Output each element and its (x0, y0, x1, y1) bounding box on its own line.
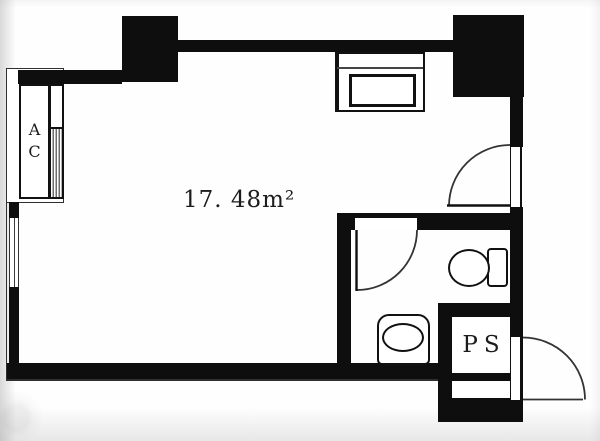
louver-panel-icon (49, 127, 64, 199)
room-door-slot (510, 147, 522, 207)
outer-line-left (6, 200, 8, 381)
toilet-tank-icon (487, 248, 508, 287)
area-label: 17. 48m² (183, 187, 295, 213)
basin-bowl-icon (382, 323, 424, 352)
column-top-right (453, 15, 524, 97)
counter-divider-line (337, 67, 423, 69)
window-glazing-line (14, 218, 16, 287)
bathroom-wall-left (337, 230, 351, 363)
window-icon (9, 218, 19, 287)
wall-bottom (7, 363, 453, 379)
entry-door-arc (523, 338, 585, 400)
wall-top-left (18, 70, 122, 84)
wall-left-upper (9, 202, 19, 218)
outer-line-bottom (6, 379, 454, 381)
wall-right-upper (510, 97, 523, 147)
floor-plan-canvas: 17. 48m² PS AC (0, 0, 600, 441)
room-door-arc (449, 145, 510, 206)
bathroom-door-arc (357, 230, 417, 290)
ac-side-panel (49, 84, 64, 129)
pipe-shaft-label: PS (452, 317, 510, 373)
entry-step-recess (452, 381, 510, 398)
bathroom-door-opening (355, 218, 417, 230)
watermark-logo (0, 390, 44, 441)
air-conditioner-label: AC (19, 84, 50, 199)
toilet-bowl-icon (448, 249, 490, 287)
entry-door-slot (510, 337, 522, 400)
kitchen-sink-icon (349, 74, 416, 107)
column-top-left (122, 16, 178, 82)
wall-left-lower (9, 287, 19, 365)
wall-top-right (178, 40, 453, 52)
